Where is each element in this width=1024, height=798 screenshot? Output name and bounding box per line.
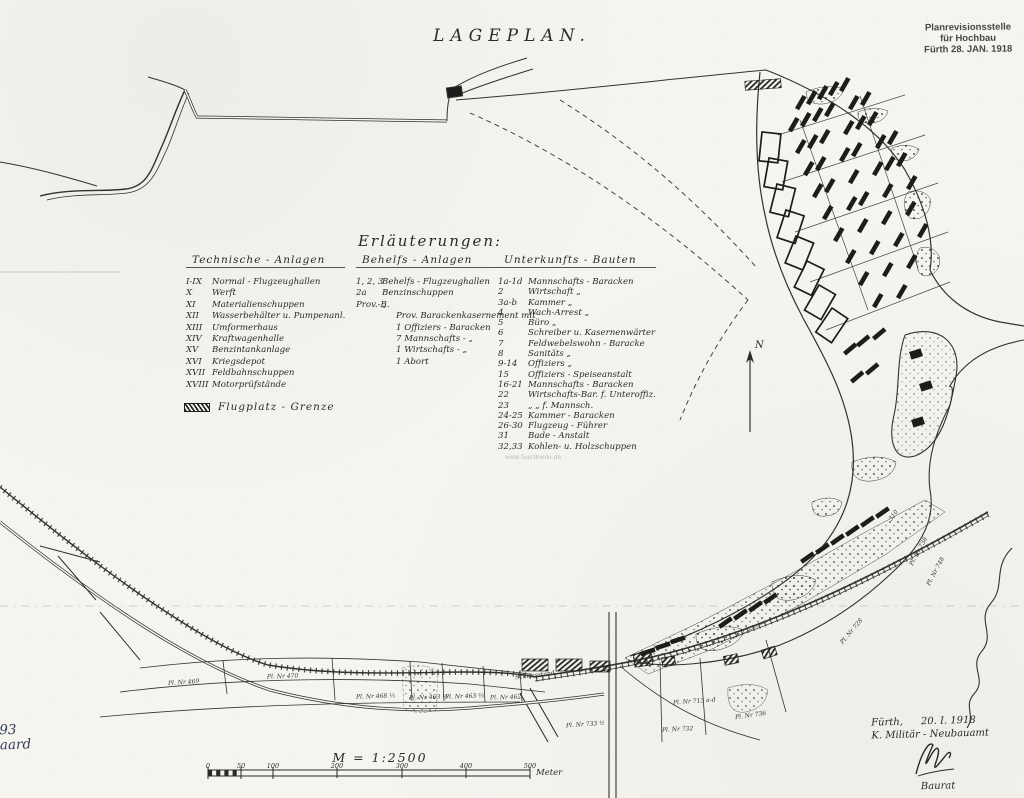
legend-item-label: Feldbahnschuppen: [212, 368, 294, 379]
road-southwest: [0, 522, 604, 710]
legend-item: XIMaterialienschuppen: [186, 300, 345, 311]
legend-item: 2Wirtschaft „: [498, 287, 656, 297]
legend-item-number: 1, 2, 3: [356, 277, 382, 288]
legend-item-number: 3a-b: [498, 298, 528, 308]
watermark: www.fuerthwiki.de: [505, 455, 562, 461]
legend-item-label: Büro „: [528, 318, 556, 328]
legend-item: XIIIUmformerhaus: [186, 323, 345, 334]
legend-item: XVBenzintankanlage: [186, 345, 345, 356]
stream-southeast: [967, 548, 1012, 728]
legend-item-number: XIV: [186, 334, 212, 345]
legend-item-label: Kohlen- u. Holzschuppen: [528, 442, 637, 452]
legend-column-header: Unterkunfts - Bauten: [498, 254, 656, 268]
legend-item-label: Kammer „: [528, 298, 572, 308]
legend-item-label: Umformerhaus: [212, 323, 278, 334]
legend-item-label: 1 Offiziers - Baracken: [382, 323, 491, 334]
plot-label: Pl. Nr 468 ⅓: [356, 692, 395, 700]
junction-building: [446, 86, 462, 98]
legend-item-number: XVII: [186, 368, 212, 379]
legend-item-number: 24-25: [498, 411, 528, 421]
archive-margin-note: 393 gaard: [0, 722, 31, 753]
legend-item-label: Wasserbehälter u. Pumpenanl.: [212, 311, 345, 322]
legend-item: 31Bade - Anstalt: [498, 431, 656, 441]
scale-ratio: M = 1:2500: [300, 750, 460, 765]
legend-item-number: [356, 323, 382, 334]
legend-item-label: Bade - Anstalt: [528, 431, 589, 441]
legend-item: 22Wirtschafts-Bar. f. Unteroffiz.: [498, 390, 656, 400]
barracks-rects: [640, 77, 928, 656]
stamp-line-1: Planrevisionsstelle: [924, 22, 1012, 34]
road-north: [185, 58, 533, 121]
scale-tick-label: 300: [396, 762, 408, 770]
north-label: N: [755, 340, 764, 351]
legend-item-number: [356, 357, 382, 368]
legend-item: 15Offiziers - Speiseanstalt: [498, 370, 656, 380]
legend-item-label: Wirtschafts-Bar. f. Unteroffiz.: [528, 390, 656, 400]
scale-tick-label: 100: [267, 762, 279, 770]
legend-item-label: Normal - Flugzeughallen: [212, 277, 320, 288]
legend-item: XVIIFeldbahnschuppen: [186, 368, 345, 379]
legend-item-label: Werft: [212, 288, 236, 299]
scanned-site-plan: LAGEPLAN. Planrevisionsstelle für Hochba…: [0, 0, 1024, 798]
legend-item-label: 1 Wirtschafts - „: [382, 345, 467, 356]
north-arrow: [746, 350, 754, 432]
legend-item-number: X: [186, 288, 212, 299]
legend-item-number: 22: [498, 390, 528, 400]
legend-item-number: XVI: [186, 357, 212, 368]
legend-item: XVIIIMotorprüfstände: [186, 380, 345, 391]
legend-item-label: Kriegsdepot: [212, 357, 265, 368]
road-south: [609, 612, 616, 798]
legend-item-number: 8: [498, 349, 528, 359]
legend-column-technische: Technische - Anlagen I-IXNormal - Flugze…: [186, 254, 345, 391]
legend-item-label: Schreiber u. Kasernenwärter: [528, 328, 655, 338]
legend-item-number: [356, 334, 382, 345]
legend-item-number: 6: [498, 328, 528, 338]
legend-item-label: „: [382, 300, 386, 311]
legend-item-label: Flugzeug - Führer: [528, 421, 607, 431]
legend-item: I-IXNormal - Flugzeughallen: [186, 277, 345, 288]
legend-item-number: XI: [186, 300, 212, 311]
legend-item-label: Wach-Arrest „: [528, 308, 589, 318]
plot-label: Pl. Nr 463 ⅓: [409, 693, 448, 701]
signature-city: Fürth,: [871, 717, 903, 730]
legend-item: 5Büro „: [498, 318, 656, 328]
signature-block: Fürth, 20. I. 1918 K. Militär - Neubauam…: [871, 714, 991, 795]
legend-item-number: 15: [498, 370, 528, 380]
hatched-building-strip: [745, 79, 782, 90]
legend-item: 32,33Kohlen- u. Holzschuppen: [498, 442, 656, 452]
legend-item: 6Schreiber u. Kasernenwärter: [498, 328, 656, 338]
legend-column-header: Technische - Anlagen: [186, 254, 345, 268]
legend-item-number: [356, 311, 382, 322]
legend-item-number: 16-21: [498, 380, 528, 390]
scale-tick-label: 500: [524, 762, 536, 770]
legend-item: 1a-1dMannschafts - Baracken: [498, 277, 656, 287]
margin-note-name: gaard: [0, 737, 31, 753]
legend-item-number: 4: [498, 308, 528, 318]
legend-item-label: Kraftwagenhalle: [212, 334, 284, 345]
field-north-edge: [456, 70, 766, 100]
legend-item: 24-25Kammer - Baracken: [498, 411, 656, 421]
legend-item-number: 32,33: [498, 442, 528, 452]
legend-item-label: Wirtschaft „: [528, 287, 581, 297]
legend-item: 3a-bKammer „: [498, 298, 656, 308]
legend-item-number: XV: [186, 345, 212, 356]
legend-item-label: Feldwebelswohn - Baracke: [528, 339, 645, 349]
legend-item: 8Sanitäts „: [498, 349, 656, 359]
tree-areas: [402, 87, 945, 713]
page-title: LAGEPLAN.: [0, 26, 1024, 46]
legend-item-number: 26-30: [498, 421, 528, 431]
legend-item-label: Behelfs - Flugzeughallen: [382, 277, 490, 288]
boundary-symbol: [184, 403, 210, 412]
legend-item-label: Mannschafts - Baracken: [528, 277, 634, 287]
scale-unit: Meter: [536, 768, 562, 778]
legend-item-number: XIII: [186, 323, 212, 334]
legend-item-number: 5: [498, 318, 528, 328]
legend-item-label: Offiziers „: [528, 359, 572, 369]
legend-item-label: 7 Mannschafts - „: [382, 334, 473, 345]
hangar-rects: [759, 132, 848, 343]
signature-title: Baurat: [921, 779, 991, 793]
scale-tick-label: 200: [331, 762, 343, 770]
legend-item: 16-21Mannschafts - Baracken: [498, 380, 656, 390]
legend-item-number: I-IX: [186, 277, 212, 288]
plot-label: Pl. Nr 470: [267, 672, 298, 680]
legend-item-label: Benzintankanlage: [212, 345, 290, 356]
stream-northwest: [0, 77, 189, 200]
legend-item-label: Motorprüfstände: [212, 380, 286, 391]
scale-bar: [208, 767, 530, 779]
legend-item-number: 2a: [356, 288, 382, 299]
scale-tick-label: 50: [237, 762, 245, 770]
legend-item: 7Feldwebelswohn - Baracke: [498, 339, 656, 349]
signature-office: K. Militär - Neubauamt: [871, 727, 989, 743]
legend-item: 26-30Flugzeug - Führer: [498, 421, 656, 431]
boundary-label: Flugplatz - Grenze: [218, 401, 335, 413]
legend-item: 4Wach-Arrest „: [498, 308, 656, 318]
approval-stamp: Planrevisionsstelle für Hochbau Fürth 28…: [924, 22, 1013, 56]
legend-item-label: Sanitäts „: [528, 349, 571, 359]
legend-item-label: 1 Abort: [382, 357, 429, 368]
legend-item-number: 2: [498, 287, 528, 297]
boundary-legend: Flugplatz - Grenze: [184, 401, 335, 413]
legend-item: 23„ „ f. Mannsch.: [498, 401, 656, 411]
legend-item-number: XII: [186, 311, 212, 322]
legend-item-label: Benzinschuppen: [382, 288, 454, 299]
legend-item-label: Mannschafts - Baracken: [528, 380, 634, 390]
legend-item-label: Kammer - Baracken: [528, 411, 615, 421]
signature-date: 20. I. 1918: [921, 715, 976, 729]
legend-item-number: 31: [498, 431, 528, 441]
legend-item: XIIWasserbehälter u. Pumpenanl.: [186, 311, 345, 322]
loop-road: [892, 332, 957, 457]
scale-tick-label: 0: [206, 762, 210, 770]
legend-item-number: Prov.-B.: [356, 300, 382, 311]
stamp-line-3: Fürth 28. JAN. 1918: [924, 44, 1012, 56]
legend-item-number: 7: [498, 339, 528, 349]
legend-heading: Erläuterungen:: [300, 232, 560, 250]
legend-column-unterkunfts: Unterkunfts - Bauten 1a-1dMannschafts - …: [498, 254, 656, 452]
legend-item-label: Materialienschuppen: [212, 300, 304, 311]
legend-item-number: XVIII: [186, 380, 212, 391]
legend-item-number: 9-14: [498, 359, 528, 369]
legend-item-number: 1a-1d: [498, 277, 528, 287]
legend-item-label: Offiziers - Speiseanstalt: [528, 370, 632, 380]
plot-label: Pl. Nr 463 ⅔: [445, 692, 484, 700]
legend-item: 9-14Offiziers „: [498, 359, 656, 369]
legend-item: XWerft: [186, 288, 345, 299]
legend-item: XIVKraftwagenhalle: [186, 334, 345, 345]
legend-item-number: [356, 345, 382, 356]
legend-item-label: „ „ f. Mannsch.: [528, 401, 593, 411]
scale-tick-label: 400: [460, 762, 472, 770]
plot-label: Pl. Nr 462: [490, 693, 521, 701]
legend-item: XVIKriegsdepot: [186, 357, 345, 368]
legend-item-number: 23: [498, 401, 528, 411]
